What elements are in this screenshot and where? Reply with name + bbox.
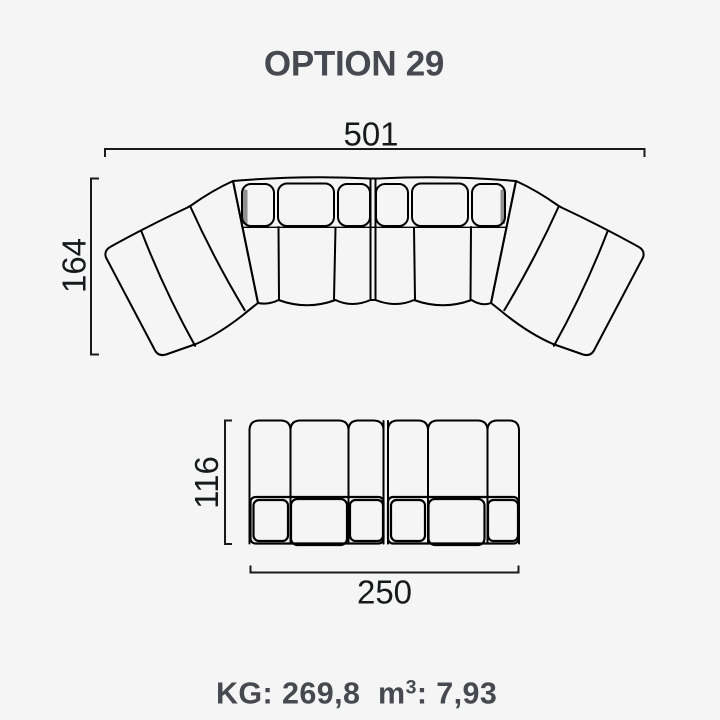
svg-text:164: 164 [56, 238, 93, 293]
svg-text:501: 501 [343, 116, 398, 153]
svg-text:116: 116 [188, 456, 225, 509]
svg-text:OPTION 29: OPTION 29 [264, 45, 444, 84]
svg-text:250: 250 [357, 574, 412, 611]
svg-text:KG: 269,8 m3: 7,93: KG: 269,8 m3: 7,93 [216, 677, 497, 711]
